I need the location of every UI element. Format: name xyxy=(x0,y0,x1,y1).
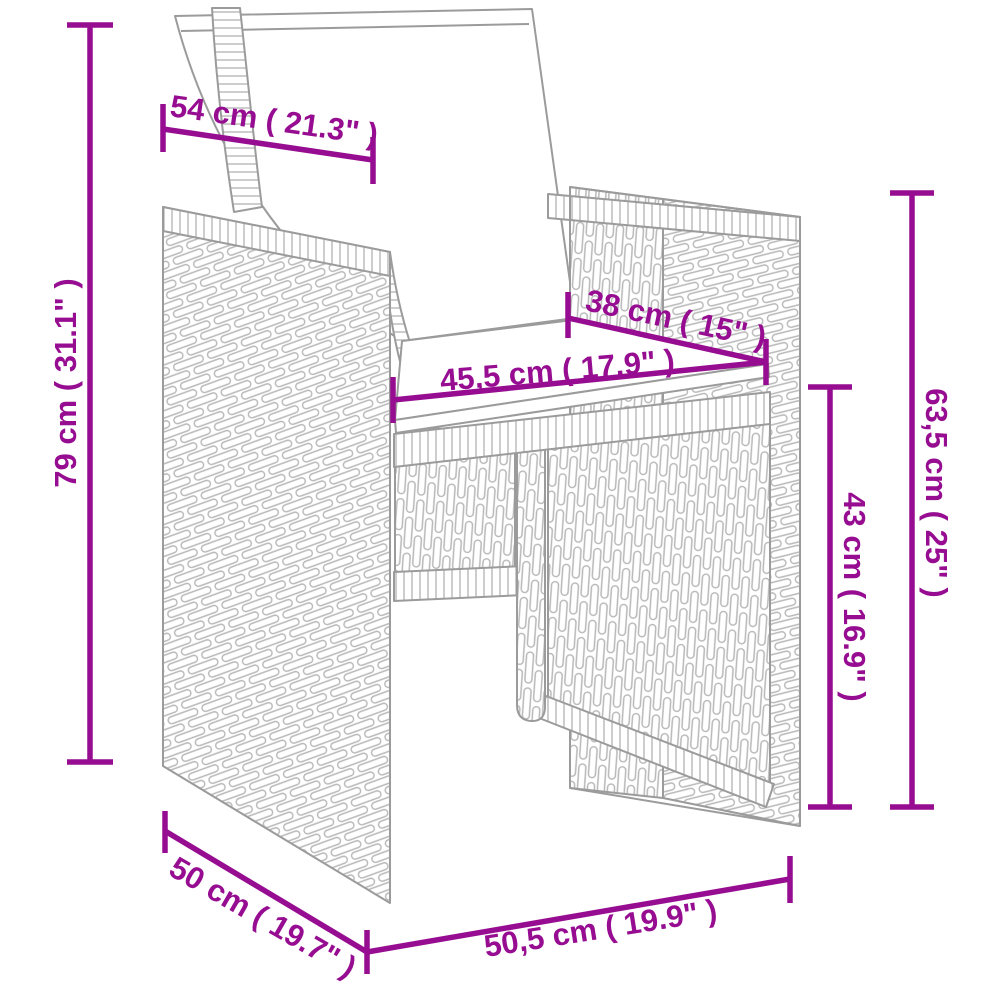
cross-bar xyxy=(394,566,524,601)
dimension-label-total-height: 79 cm ( 31.1" ) xyxy=(48,278,83,487)
chair-dimension-diagram: 54 cm ( 21.3" ) 79 cm ( 31.1" ) 38 cm ( … xyxy=(0,0,1000,1000)
left-side-panel xyxy=(163,207,390,903)
dimension-base-width: 50,5 cm ( 19.9" ) xyxy=(367,856,790,974)
dimension-total-height: 79 cm ( 31.1" ) xyxy=(48,25,113,762)
front-center-leg xyxy=(517,444,545,721)
dimension-label-armrest-height: 63,5 cm ( 25" ) xyxy=(919,388,954,597)
dimension-seat-height: 43 cm ( 16.9" ) xyxy=(808,387,872,807)
dimension-label-seat-height: 43 cm ( 16.9" ) xyxy=(837,492,872,701)
dimension-label-base-depth: 50 cm ( 19.7" ) xyxy=(164,850,363,985)
dimension-diagram-page: 54 cm ( 21.3" ) 79 cm ( 31.1" ) 38 cm ( … xyxy=(0,0,1000,1000)
dimension-label-base-width: 50,5 cm ( 19.9" ) xyxy=(482,893,720,964)
dimension-armrest-height: 63,5 cm ( 25" ) xyxy=(890,193,954,807)
